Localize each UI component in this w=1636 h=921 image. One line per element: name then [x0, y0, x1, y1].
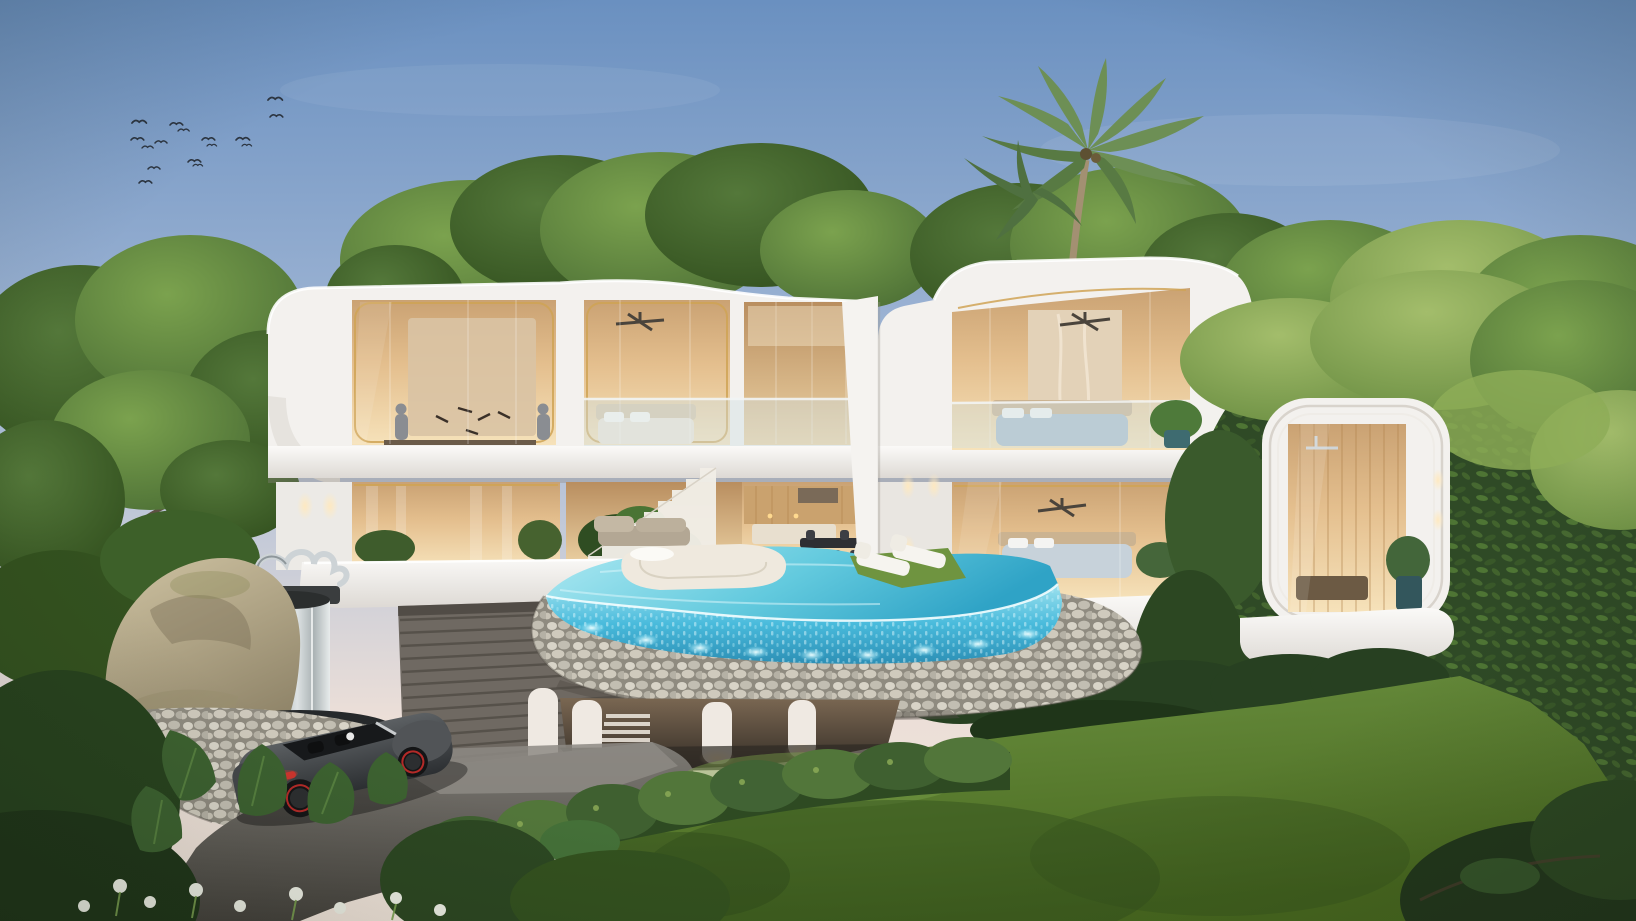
villa-render — [0, 0, 1636, 921]
scene-canvas — [0, 0, 1636, 921]
vignette — [0, 0, 1636, 921]
